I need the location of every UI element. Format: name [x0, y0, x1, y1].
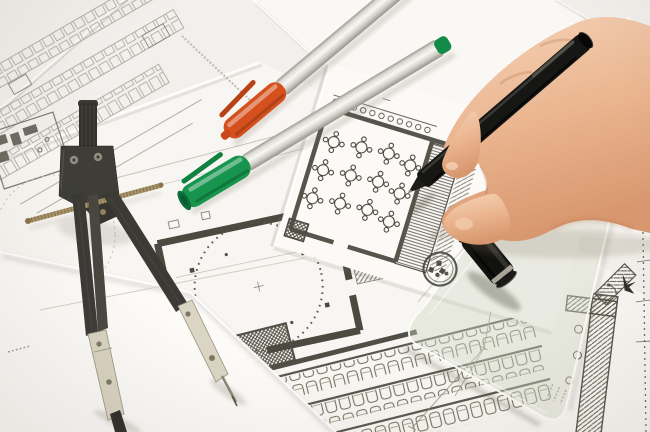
photo-canvas: A right hand holding a black fineliner p…	[0, 0, 650, 432]
architecture-desk-photo: A right hand holding a black fineliner p…	[0, 0, 650, 432]
